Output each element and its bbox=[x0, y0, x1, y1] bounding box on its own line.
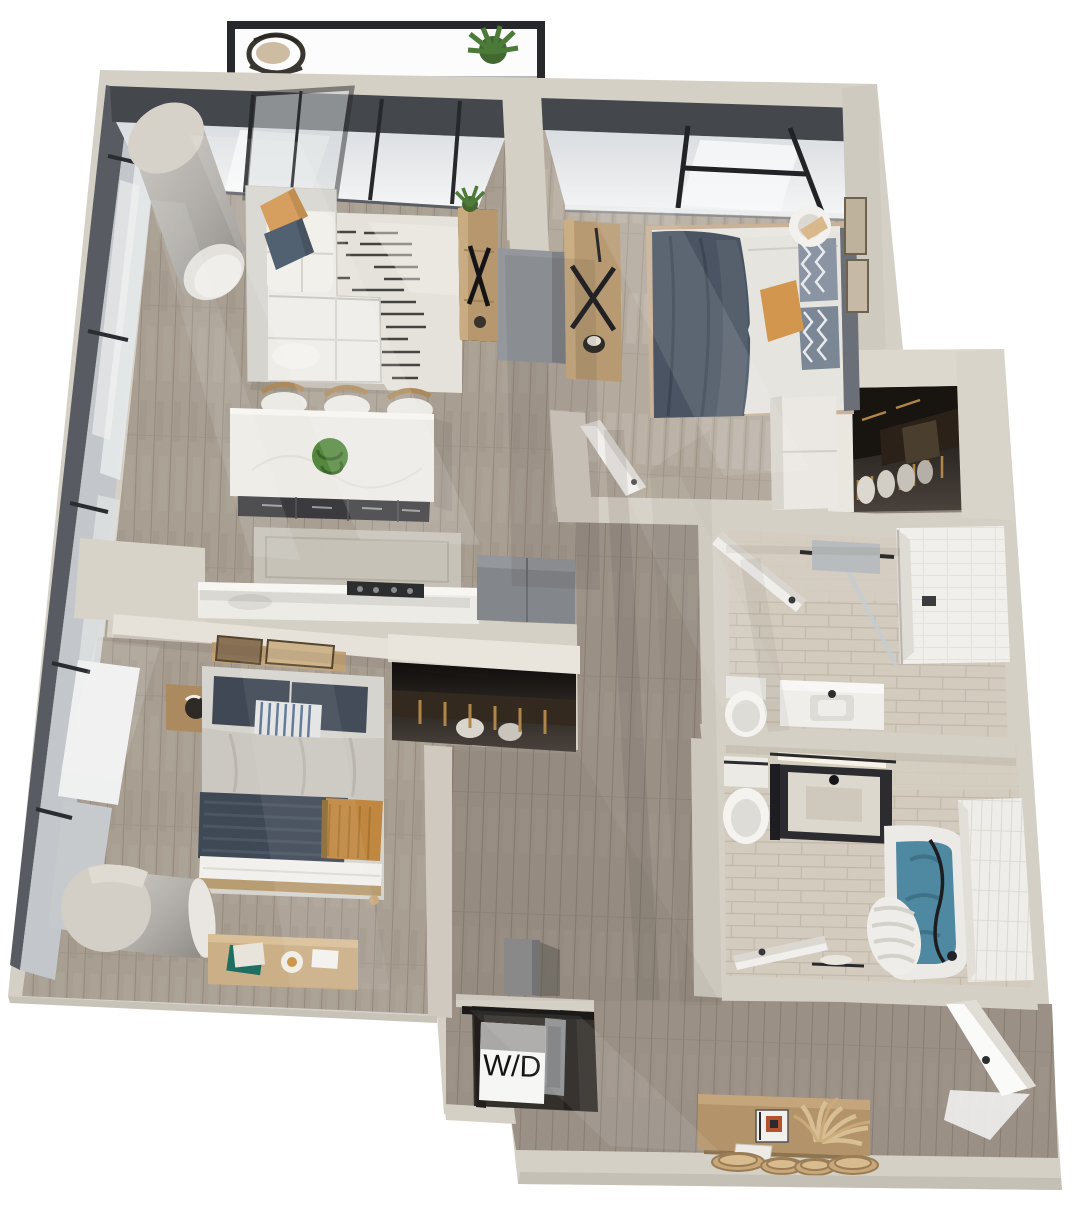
svg-text:W/D: W/D bbox=[482, 1049, 541, 1084]
